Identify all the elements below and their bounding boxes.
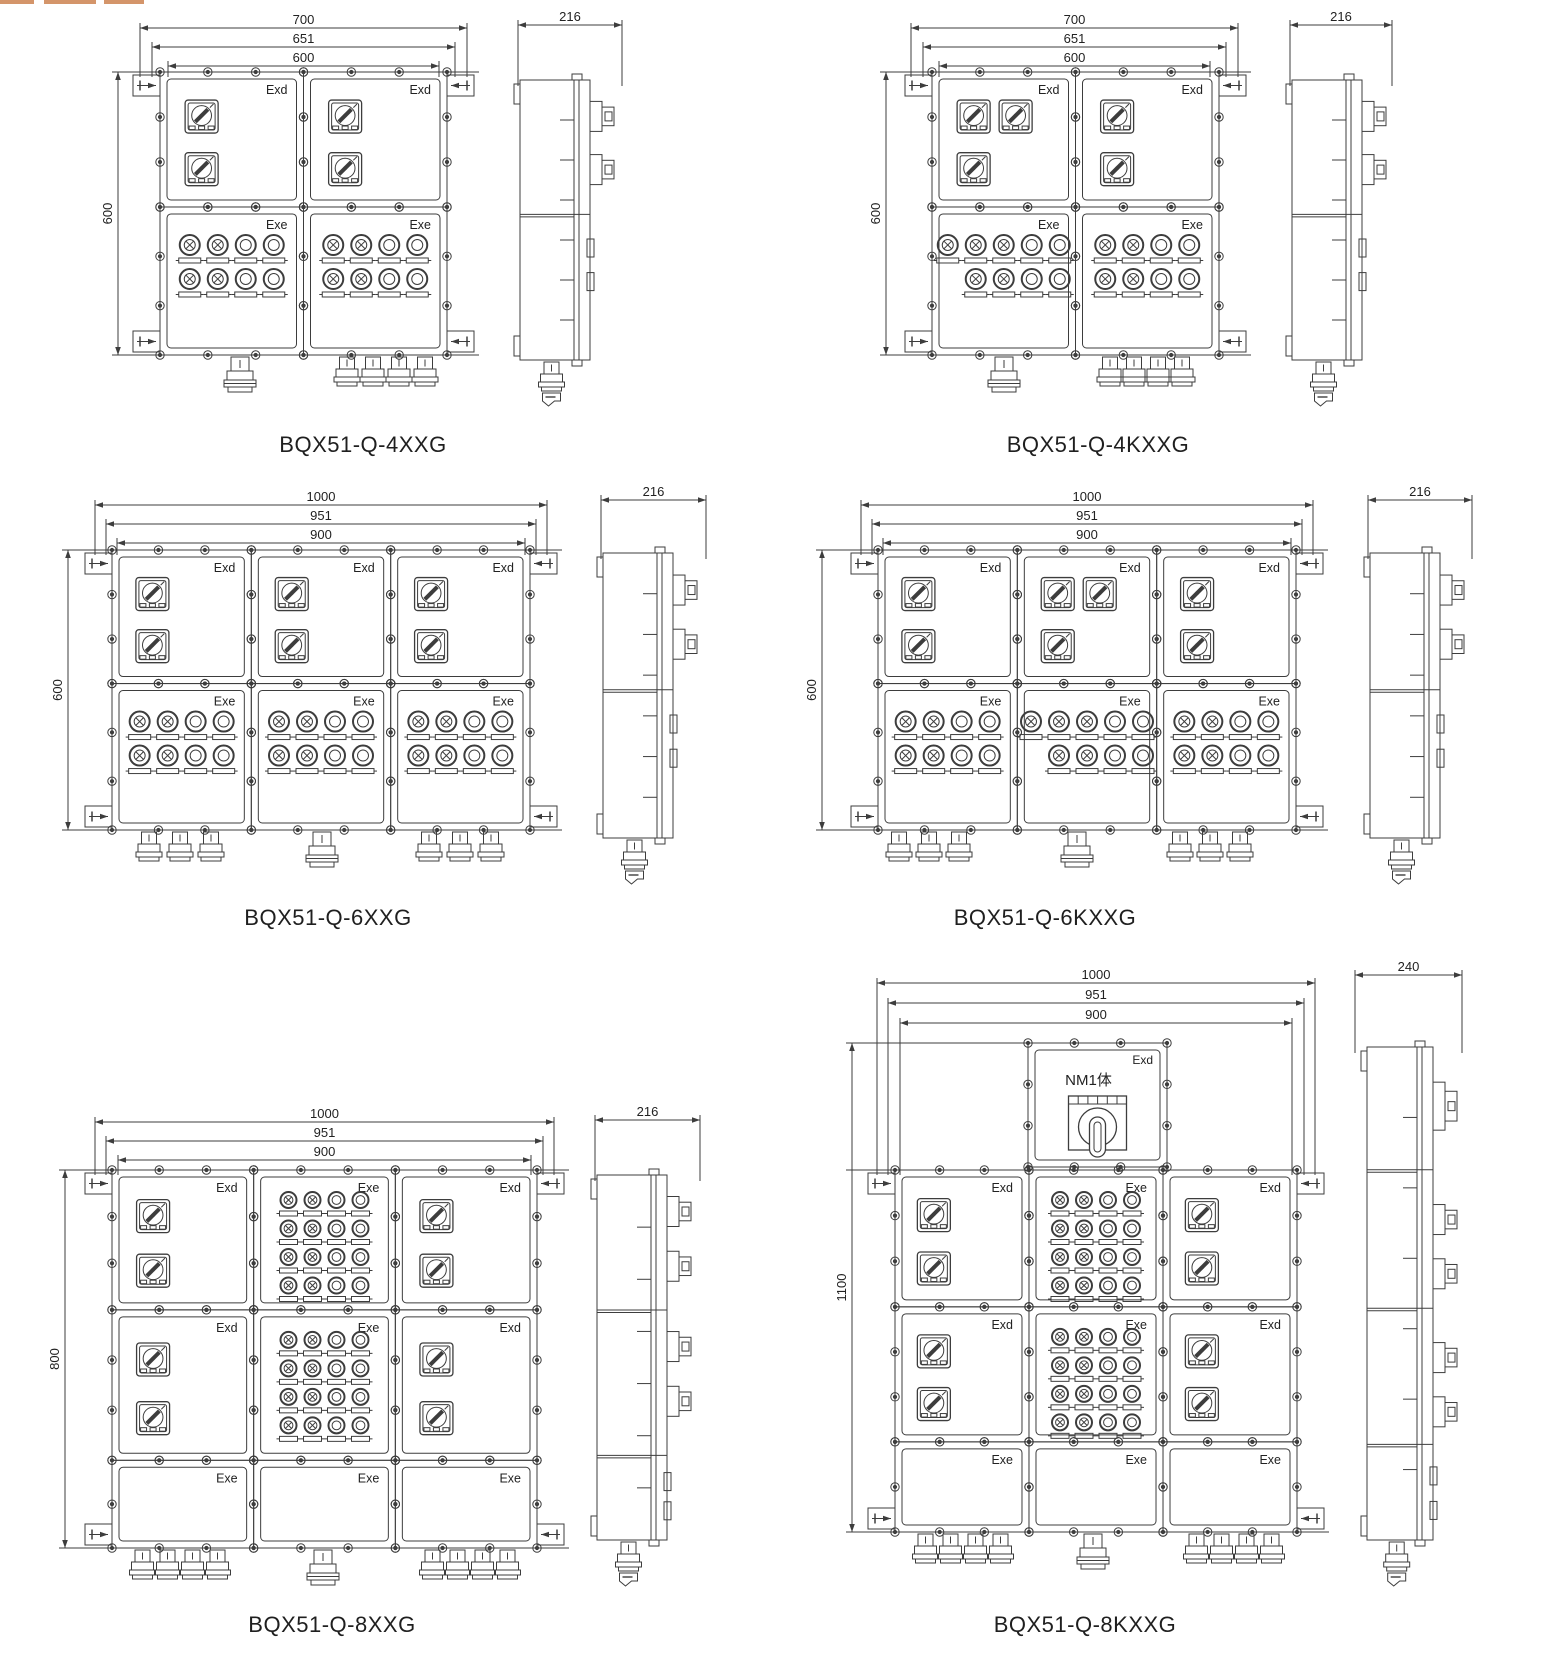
indicator-light-icon xyxy=(1101,712,1129,740)
compartment-label: Exd xyxy=(499,1321,521,1335)
indicator-light-icon xyxy=(1091,235,1119,263)
indicator-light-icon xyxy=(204,269,232,297)
door-handle xyxy=(1440,575,1464,605)
cable-gland-icon xyxy=(306,832,338,867)
cable-gland-icon xyxy=(963,1534,989,1563)
cable-gland-icon xyxy=(1227,832,1253,861)
cable-gland-icon xyxy=(1384,1542,1410,1571)
compartment: Exe xyxy=(1013,679,1161,834)
indicator-light-icon xyxy=(892,712,920,740)
compartment-label: Exe xyxy=(214,695,236,709)
side-view: 216 xyxy=(1364,484,1472,884)
dimension-label: 216 xyxy=(1409,484,1431,499)
rotary-switch-icon xyxy=(1181,578,1214,611)
indicator-light-icon xyxy=(488,712,516,740)
cable-gland-icon xyxy=(1311,362,1337,391)
indicator-light-icon xyxy=(301,1221,325,1245)
rotary-switch-icon xyxy=(275,578,308,611)
mounting-ear xyxy=(85,806,112,827)
indicator-light-icon xyxy=(301,1332,325,1356)
indicator-light-icon xyxy=(319,269,347,297)
indicator-light-icon xyxy=(403,269,431,297)
rotary-switch-icon xyxy=(185,100,218,133)
dimension-label: 600 xyxy=(50,679,65,701)
compartment: Exd xyxy=(1159,1303,1301,1446)
indicator-light-icon xyxy=(1072,1278,1096,1302)
cable-gland-icon xyxy=(412,357,438,386)
mounting-ear xyxy=(133,75,160,96)
side-view: 240 xyxy=(1355,959,1462,1586)
indicator-light-icon xyxy=(176,235,204,263)
compartment: Exe xyxy=(1025,1303,1167,1446)
compartment-label: Exd xyxy=(1119,561,1141,575)
cable-gland-icon xyxy=(334,357,360,386)
compartment: Exe xyxy=(928,203,1080,359)
compartment-label: Exe xyxy=(1119,695,1141,709)
indicator-light-icon xyxy=(1096,1278,1120,1302)
cable-gland-icon xyxy=(167,832,193,861)
compartment: Exd xyxy=(108,1166,258,1314)
door-handle xyxy=(1433,1082,1457,1130)
dimension: 216 xyxy=(1290,9,1392,86)
compartment: Exe xyxy=(386,679,534,834)
indicator-light-icon xyxy=(404,712,432,740)
indicator-light-icon xyxy=(1120,1278,1144,1302)
compartment-label: Exe xyxy=(991,1453,1013,1467)
dimension-label: 600 xyxy=(868,203,883,225)
compartment: Exd xyxy=(299,68,451,211)
rotary-switch-icon xyxy=(917,1335,950,1368)
mounting-ear xyxy=(868,1508,895,1529)
compartment: Exe xyxy=(1152,679,1300,834)
compartment-label: Exe xyxy=(1259,1453,1281,1467)
indicator-light-icon xyxy=(277,1278,301,1302)
cable-gland-icon xyxy=(224,357,256,392)
side-view: 216 xyxy=(597,484,706,884)
indicator-light-icon xyxy=(1254,746,1282,774)
compartment-label: Exe xyxy=(409,218,431,232)
rotary-switch-icon xyxy=(1185,1252,1218,1285)
door-handle xyxy=(1362,101,1386,131)
indicator-light-icon xyxy=(293,746,321,774)
compartment: Exe xyxy=(247,679,395,834)
compartment-label: Exd xyxy=(409,83,431,97)
dimension-label: 600 xyxy=(1064,50,1086,65)
indicator-light-icon xyxy=(976,712,1004,740)
indicator-light-icon xyxy=(962,269,990,297)
indicator-light-icon xyxy=(325,1249,349,1273)
mounting-ear xyxy=(1219,331,1246,352)
indicator-light-icon xyxy=(1096,1221,1120,1245)
door-handle xyxy=(590,101,614,131)
compartment: Exd xyxy=(1159,1166,1301,1311)
diagram-bqx51-q-4kxxg: 700651600600ExdExdExeExe216 xyxy=(868,9,1392,406)
main-switch-label: NM1体 xyxy=(1065,1072,1112,1089)
mounting-ear xyxy=(905,331,932,352)
compartment-label: Exe xyxy=(266,218,288,232)
indicator-light-icon xyxy=(1017,712,1045,740)
dimension-label: 216 xyxy=(1330,9,1352,24)
indicator-light-icon xyxy=(1147,235,1175,263)
main-switch-icon xyxy=(1069,1096,1127,1157)
compartment: Exd xyxy=(247,546,395,688)
compartment: Exe xyxy=(1025,1166,1167,1311)
indicator-light-icon xyxy=(1072,1192,1096,1216)
door-handle xyxy=(1433,1343,1457,1373)
indicator-light-icon xyxy=(277,1360,301,1384)
mounting-ear xyxy=(447,75,474,96)
door-handle xyxy=(667,1332,691,1362)
compartment: Exd xyxy=(928,68,1080,211)
cable-gland-icon xyxy=(470,1550,496,1579)
indicator-light-icon xyxy=(934,235,962,263)
rotary-switch-icon xyxy=(137,1402,170,1435)
compartment-label: Exe xyxy=(499,1471,521,1485)
mounting-ear xyxy=(851,806,878,827)
mounting-ear xyxy=(1219,75,1246,96)
dimension-label: 951 xyxy=(314,1125,336,1140)
indicator-light-icon xyxy=(154,712,182,740)
indicator-light-icon xyxy=(260,269,288,297)
indicator-light-icon xyxy=(1119,235,1147,263)
dimension: 216 xyxy=(595,1104,700,1181)
indicator-light-icon xyxy=(1045,746,1073,774)
dimension-label: 1000 xyxy=(307,489,336,504)
compartment-label: Exe xyxy=(1125,1453,1147,1467)
rotary-switch-icon xyxy=(415,630,448,663)
compartment: Exd xyxy=(891,1303,1033,1446)
indicator-light-icon xyxy=(349,1360,373,1384)
dimension: 216 xyxy=(1368,484,1472,559)
door-handle xyxy=(1433,1397,1457,1427)
rotary-switch-icon xyxy=(1185,1335,1218,1368)
indicator-light-icon xyxy=(488,746,516,774)
indicator-light-icon xyxy=(1096,1357,1120,1381)
indicator-light-icon xyxy=(375,269,403,297)
indicator-light-icon xyxy=(1048,1329,1072,1353)
dimension-label: 651 xyxy=(1064,31,1086,46)
mounting-ear xyxy=(85,1173,112,1194)
cropped-text-fragment xyxy=(104,0,144,4)
dimension-label: 700 xyxy=(293,12,315,27)
diagram-bqx51-q-6xxg: 1000951900600ExdExdExdExeExeExe216 xyxy=(50,484,706,884)
dimension-label: 900 xyxy=(314,1144,336,1159)
rotary-switch-icon xyxy=(275,630,308,663)
compartment-label: Exe xyxy=(980,695,1002,709)
indicator-light-icon xyxy=(301,1389,325,1413)
indicator-light-icon xyxy=(349,1221,373,1245)
diagram-caption: BQX51-Q-8KXXG xyxy=(994,1612,1177,1638)
indicator-light-icon xyxy=(1046,269,1074,297)
dimension-label: 1000 xyxy=(1073,489,1102,504)
indicator-light-icon xyxy=(210,712,238,740)
indicator-light-icon xyxy=(232,235,260,263)
rotary-switch-icon xyxy=(957,100,990,133)
cable-gland-icon xyxy=(1077,1534,1109,1569)
compartment: Exd xyxy=(391,1306,541,1465)
mounting-ear xyxy=(530,806,557,827)
indicator-light-icon xyxy=(990,235,1018,263)
compartment: Exd xyxy=(1071,68,1223,211)
indicator-light-icon xyxy=(1198,746,1226,774)
compartment-label: Exd xyxy=(266,83,288,97)
indicator-light-icon xyxy=(976,746,1004,774)
rotary-switch-icon xyxy=(999,100,1032,133)
rotary-switch-icon xyxy=(902,630,935,663)
indicator-light-icon xyxy=(347,235,375,263)
indicator-light-icon xyxy=(1072,1249,1096,1273)
technical-drawing-canvas: 700651600600ExdExdExeExe216700651600600E… xyxy=(0,0,1553,1662)
compartment-label: Exd xyxy=(1181,83,1203,97)
rotary-switch-icon xyxy=(917,1199,950,1232)
compartment: Exd xyxy=(108,546,256,688)
front-view: 700651600600ExdExdExeExe xyxy=(868,12,1251,392)
compartment-label: Exd xyxy=(991,1318,1013,1332)
dimension: 600 xyxy=(804,550,825,830)
compartment-label: Exd xyxy=(980,561,1002,575)
cable-gland-icon xyxy=(1121,357,1147,386)
rotary-switch-icon xyxy=(1181,630,1214,663)
indicator-light-icon xyxy=(1120,1249,1144,1273)
indicator-light-icon xyxy=(321,746,349,774)
rotary-switch-icon xyxy=(329,153,362,186)
indicator-light-icon xyxy=(1073,712,1101,740)
rotary-switch-icon xyxy=(1041,578,1074,611)
indicator-light-icon xyxy=(1119,269,1147,297)
indicator-light-icon xyxy=(210,746,238,774)
cable-gland-icon xyxy=(1061,832,1093,867)
dimension-label: 1100 xyxy=(834,1274,849,1302)
compartment-label: Exd xyxy=(1259,1318,1281,1332)
mounting-ear xyxy=(85,553,112,574)
indicator-light-icon xyxy=(404,746,432,774)
dimension: 900 xyxy=(883,527,1291,555)
cable-gland-icon xyxy=(130,1550,156,1579)
indicator-light-icon xyxy=(301,1192,325,1216)
mounting-ear xyxy=(530,553,557,574)
indicator-light-icon xyxy=(1018,235,1046,263)
front-view: 1000951900600ExdExdExdExeExeExe xyxy=(50,489,562,867)
compartment: Exe xyxy=(249,1456,399,1552)
dimension: 216 xyxy=(518,9,622,86)
cable-gland-icon xyxy=(988,357,1020,392)
cable-gland-icon xyxy=(386,357,412,386)
indicator-light-icon xyxy=(1175,269,1203,297)
indicator-light-icon xyxy=(349,1192,373,1216)
cable-gland-icon xyxy=(420,1550,446,1579)
cable-gland-icon xyxy=(1184,1534,1210,1563)
rotary-switch-icon xyxy=(137,1343,170,1376)
indicator-light-icon xyxy=(1018,269,1046,297)
cable-gland-icon xyxy=(307,1550,339,1585)
mounting-ear xyxy=(447,331,474,352)
indicator-light-icon xyxy=(277,1389,301,1413)
front-view: 700651600600ExdExdExeExe xyxy=(100,12,479,392)
diagram-caption: BQX51-Q-4XXG xyxy=(279,432,446,458)
indicator-light-icon xyxy=(277,1332,301,1356)
indicator-light-icon xyxy=(1101,746,1129,774)
indicator-light-icon xyxy=(293,712,321,740)
compartment: Exe xyxy=(249,1306,399,1465)
indicator-light-icon xyxy=(892,746,920,774)
indicator-light-icon xyxy=(403,235,431,263)
rotary-switch-icon xyxy=(136,578,169,611)
cable-gland-icon xyxy=(913,1534,939,1563)
mounting-ear xyxy=(537,1524,564,1545)
compartment-label: Exd xyxy=(499,1181,521,1195)
compartment-label: Exe xyxy=(1258,695,1280,709)
diagram-bqx51-q-4xxg: 700651600600ExdExdExeExe216 xyxy=(100,9,622,406)
cable-gland-icon xyxy=(988,1534,1014,1563)
compartment: Exe xyxy=(156,203,308,359)
dimension-label: 1000 xyxy=(310,1106,339,1121)
side-view: 216 xyxy=(514,9,622,406)
rotary-switch-icon xyxy=(420,1343,453,1376)
indicator-light-icon xyxy=(1096,1192,1120,1216)
compartment-label: Exd xyxy=(353,561,375,575)
cable-gland-icon xyxy=(495,1550,521,1579)
indicator-light-icon xyxy=(1045,712,1073,740)
cable-gland-icon xyxy=(445,1550,471,1579)
compartment-label: Exd xyxy=(492,561,514,575)
indicator-light-icon xyxy=(432,712,460,740)
door-handle xyxy=(667,1197,691,1227)
cable-gland-icon xyxy=(205,1550,231,1579)
indicator-light-icon xyxy=(1048,1192,1072,1216)
compartment: Exe xyxy=(299,203,451,359)
indicator-light-icon xyxy=(277,1249,301,1273)
cable-gland-icon xyxy=(622,840,648,869)
indicator-light-icon xyxy=(204,235,232,263)
compartment-label: Exe xyxy=(492,695,514,709)
diagram-caption: BQX51-Q-6KXXG xyxy=(954,905,1137,931)
indicator-light-icon xyxy=(349,1417,373,1441)
compartment-label: Exe xyxy=(1038,218,1060,232)
cable-gland-icon xyxy=(416,832,442,861)
indicator-light-icon xyxy=(432,746,460,774)
compartment-label: Exd xyxy=(1132,1053,1153,1067)
indicator-light-icon xyxy=(277,1192,301,1216)
indicator-light-icon xyxy=(1046,235,1074,263)
indicator-light-icon xyxy=(1048,1221,1072,1245)
indicator-light-icon xyxy=(1048,1357,1072,1381)
door-handle xyxy=(1433,1259,1457,1289)
diagram-bqx51-q-8kxxg: 10009519001100ExdNM1体ExdExeExdExdExeExdE… xyxy=(834,959,1462,1586)
rotary-switch-icon xyxy=(420,1200,453,1233)
rotary-switch-icon xyxy=(1185,1388,1218,1421)
indicator-light-icon xyxy=(460,712,488,740)
indicator-light-icon xyxy=(260,235,288,263)
compartment: Exe xyxy=(249,1166,399,1314)
indicator-light-icon xyxy=(948,746,976,774)
door-handle xyxy=(673,575,697,605)
cable-gland-icon xyxy=(938,1534,964,1563)
dimension-label: 951 xyxy=(1085,987,1107,1002)
cable-gland-icon xyxy=(1259,1534,1285,1563)
indicator-light-icon xyxy=(1120,1329,1144,1353)
dimension-label: 216 xyxy=(559,9,581,24)
indicator-light-icon xyxy=(1072,1329,1096,1353)
indicator-light-icon xyxy=(1129,712,1157,740)
indicator-light-icon xyxy=(349,1389,373,1413)
indicator-light-icon xyxy=(1226,746,1254,774)
cable-gland-icon xyxy=(155,1550,181,1579)
dimension-label: 1000 xyxy=(1082,967,1111,982)
door-handle xyxy=(1433,1205,1457,1235)
door-handle xyxy=(1362,155,1386,185)
indicator-light-icon xyxy=(347,269,375,297)
compartment: Exe xyxy=(108,679,256,834)
indicator-light-icon xyxy=(182,746,210,774)
compartment-label: Exd xyxy=(991,1181,1013,1195)
compartment: Exe xyxy=(108,1456,258,1552)
indicator-light-icon xyxy=(232,269,260,297)
compartment: Exd xyxy=(108,1306,258,1465)
indicator-light-icon xyxy=(990,269,1018,297)
cropped-text-artifact xyxy=(0,0,150,4)
indicator-light-icon xyxy=(325,1417,349,1441)
indicator-light-icon xyxy=(460,746,488,774)
rotary-switch-icon xyxy=(137,1254,170,1287)
compartment-label: Exd xyxy=(1259,1181,1281,1195)
indicator-light-icon xyxy=(301,1278,325,1302)
cable-gland-icon xyxy=(1097,357,1123,386)
indicator-light-icon xyxy=(1170,746,1198,774)
door-handle xyxy=(590,155,614,185)
diagram-bqx51-q-8xxg: 1000951900800ExdExeExdExdExeExdExeExeExe… xyxy=(47,1104,700,1586)
indicator-light-icon xyxy=(325,1389,349,1413)
cable-gland-icon xyxy=(1389,840,1415,869)
indicator-light-icon xyxy=(1048,1278,1072,1302)
diagram-bqx51-q-6kxxg: 1000951900600ExdExdExdExeExeExe216 xyxy=(804,484,1472,884)
dimension: 240 xyxy=(1355,959,1462,1053)
cable-gland-icon xyxy=(136,832,162,861)
indicator-light-icon xyxy=(920,712,948,740)
compartment: Exd xyxy=(391,1166,541,1314)
indicator-light-icon xyxy=(1072,1357,1096,1381)
indicator-light-icon xyxy=(182,712,210,740)
cable-gland-icon xyxy=(198,832,224,861)
indicator-light-icon xyxy=(1120,1386,1144,1410)
indicator-light-icon xyxy=(325,1221,349,1245)
rotary-switch-icon xyxy=(420,1254,453,1287)
dimension-label: 651 xyxy=(293,31,315,46)
cable-gland-icon xyxy=(447,832,473,861)
compartment: Exe xyxy=(874,679,1022,834)
indicator-light-icon xyxy=(920,746,948,774)
compartment-label: Exd xyxy=(1038,83,1060,97)
indicator-light-icon xyxy=(1254,712,1282,740)
indicator-light-icon xyxy=(1096,1249,1120,1273)
indicator-light-icon xyxy=(1072,1386,1096,1410)
dimension-label: 900 xyxy=(1085,1007,1107,1022)
compartment: Exe xyxy=(1071,203,1223,359)
indicator-light-icon xyxy=(1175,235,1203,263)
rotary-switch-icon xyxy=(420,1402,453,1435)
indicator-light-icon xyxy=(1147,269,1175,297)
indicator-light-icon xyxy=(349,712,377,740)
indicator-light-icon xyxy=(1226,712,1254,740)
indicator-light-icon xyxy=(319,235,347,263)
cable-gland-icon xyxy=(616,1542,642,1571)
rotary-switch-icon xyxy=(1101,153,1134,186)
cable-gland-icon xyxy=(180,1550,206,1579)
dimension-label: 900 xyxy=(1076,527,1098,542)
indicator-light-icon xyxy=(962,235,990,263)
dimension-label: 600 xyxy=(804,679,819,701)
diagram-caption: BQX51-Q-6XXG xyxy=(244,905,411,931)
indicator-light-icon xyxy=(1073,746,1101,774)
